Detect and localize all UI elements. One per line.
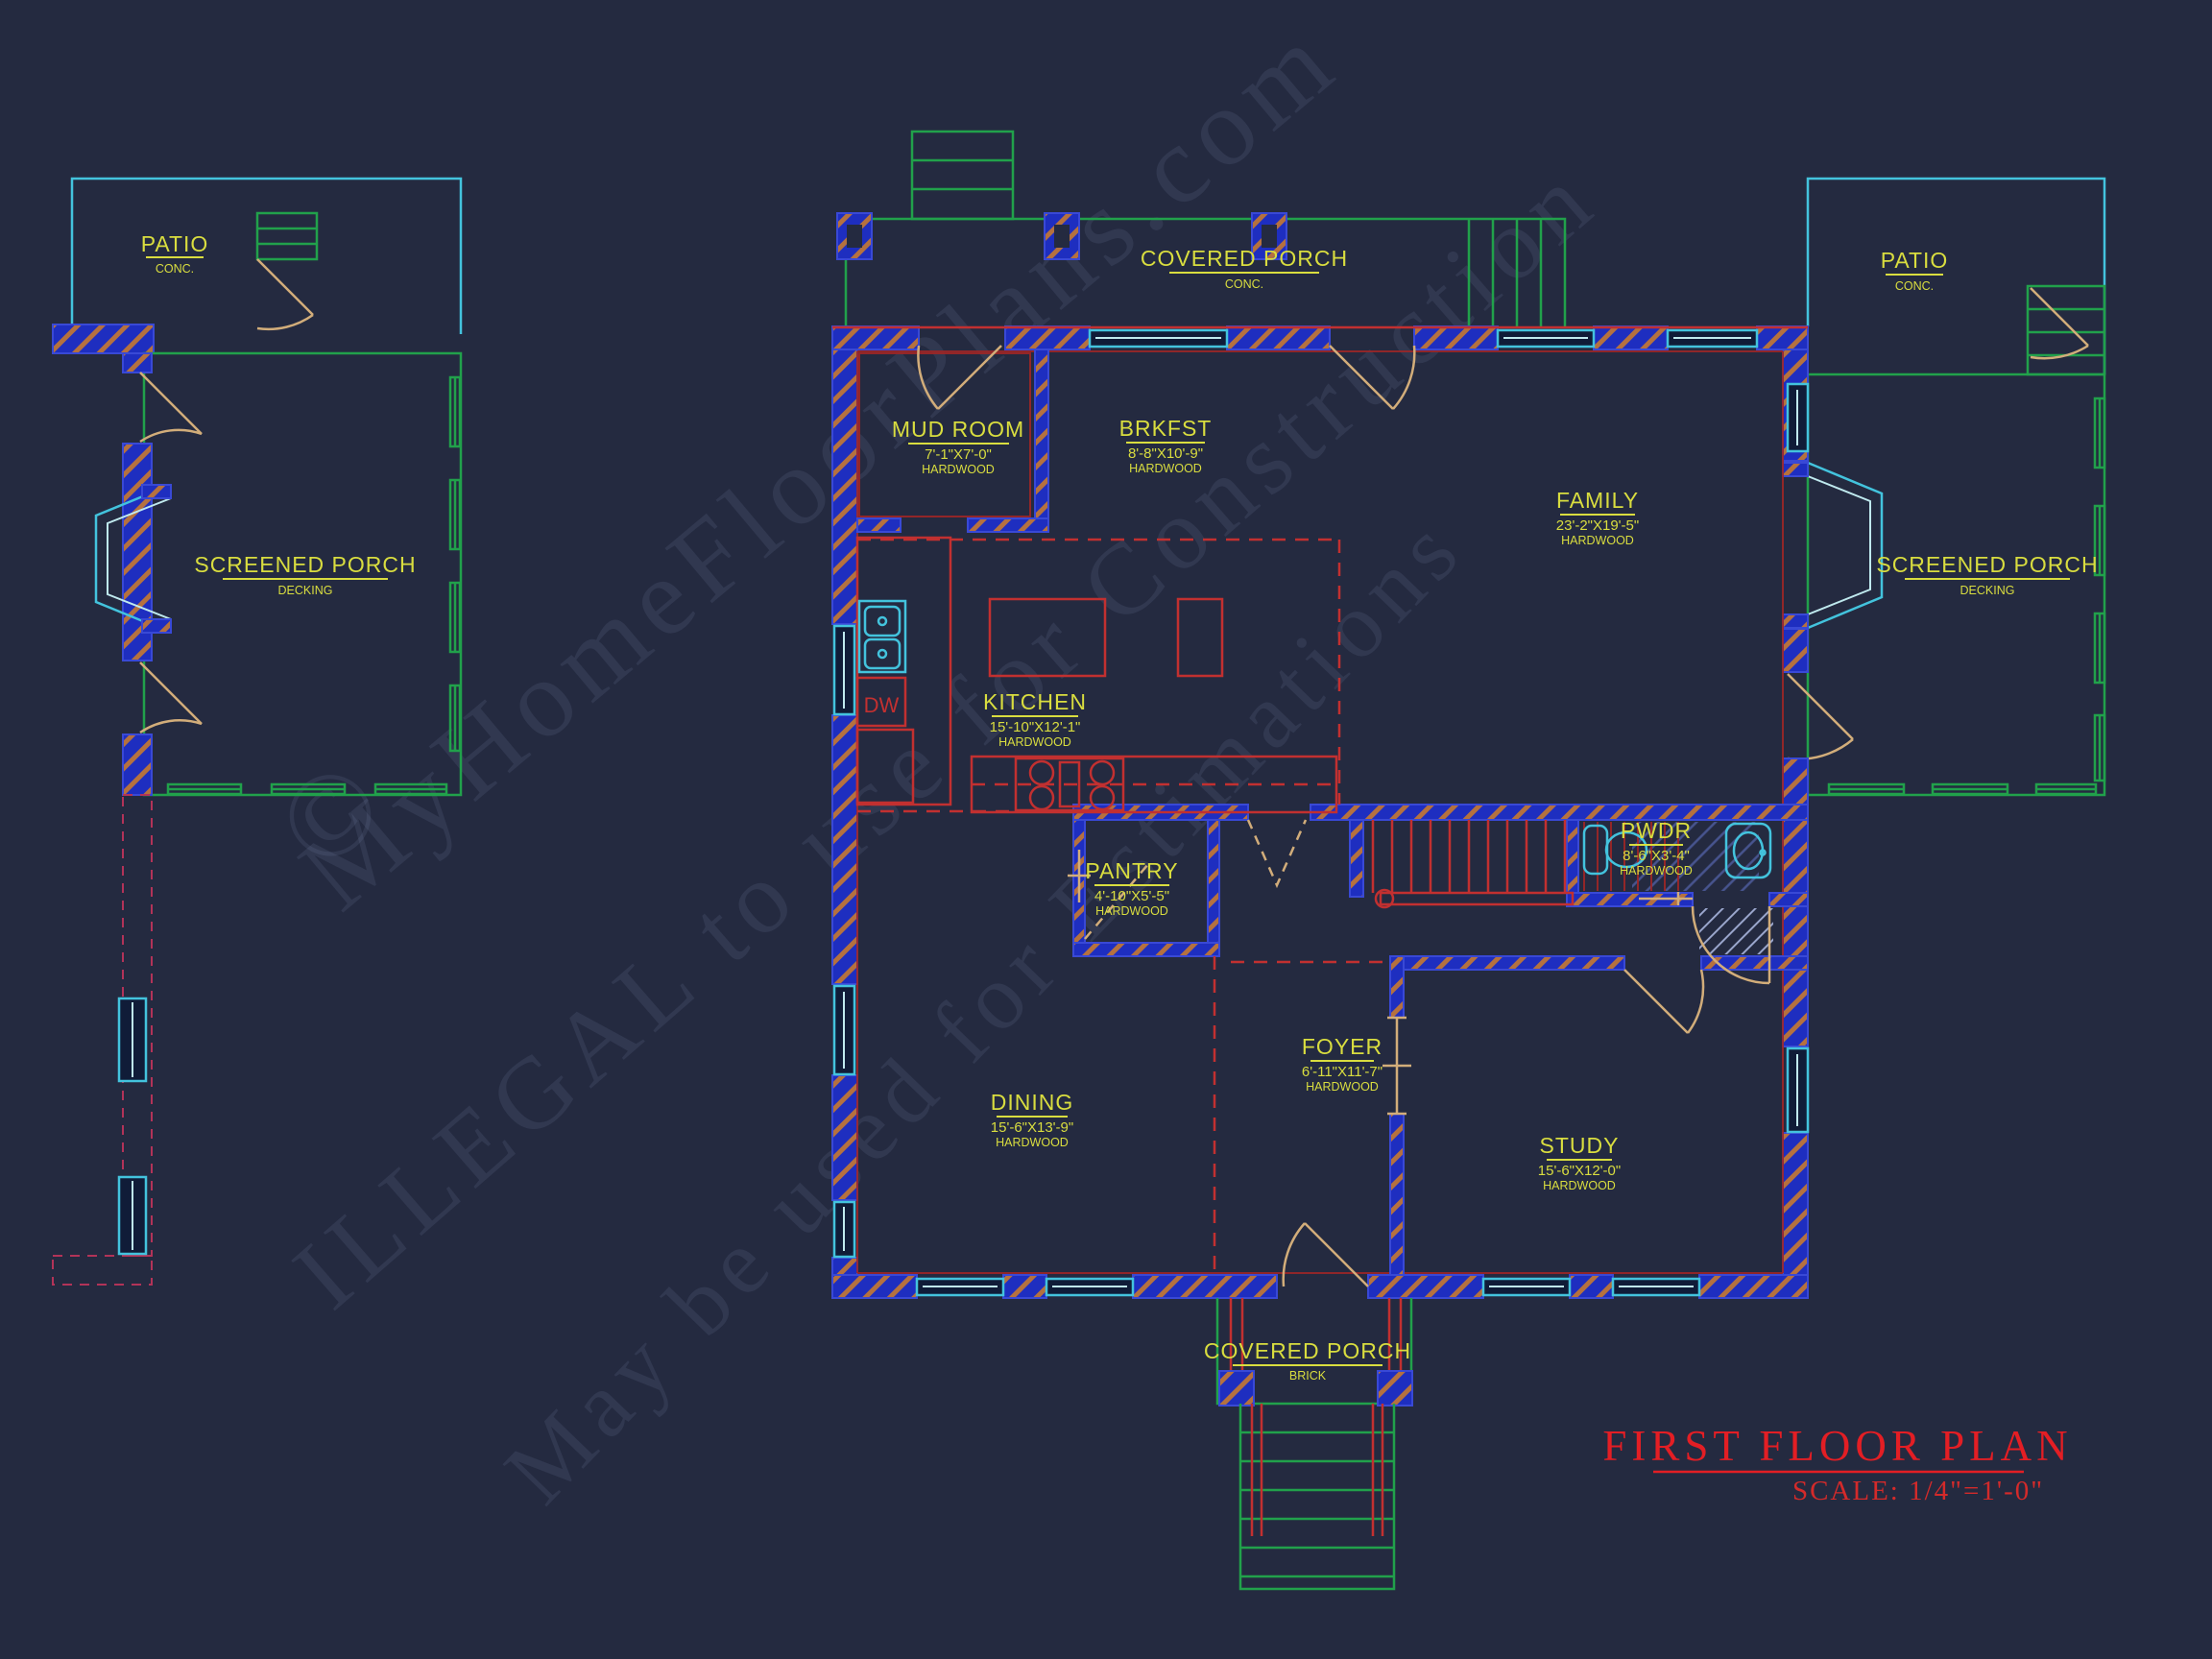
room-floor: DECKING	[1960, 584, 2015, 597]
cased-opening-marker	[1382, 1018, 1411, 1114]
room-name: PATIO	[1881, 248, 1949, 273]
room-label-patio-left: PATIO CONC.	[141, 231, 209, 276]
door-swing	[140, 662, 202, 733]
room-name: KITCHEN	[983, 689, 1087, 714]
window	[119, 1177, 146, 1254]
kitchen-fixtures: DW	[857, 538, 1339, 812]
bay-window-right	[1783, 463, 1882, 628]
wall-segment	[53, 325, 154, 353]
room-floor: HARDWOOD	[1543, 1179, 1616, 1192]
dishwasher-label: DW	[864, 693, 900, 717]
room-name: FAMILY	[1556, 488, 1639, 513]
floor-plan-drawing: DW	[0, 0, 2212, 1659]
room-floor: HARDWOOD	[1306, 1080, 1379, 1094]
window	[834, 986, 854, 1074]
room-name: PANTRY	[1085, 858, 1178, 883]
room-name: BRKFST	[1119, 416, 1213, 441]
room-floor: HARDWOOD	[996, 1136, 1069, 1149]
window	[1613, 1279, 1699, 1295]
room-label-mud-room: MUD ROOM 7'-1"X7'-0" HARDWOOD	[892, 417, 1024, 476]
window	[1788, 384, 1808, 451]
room-label-brkfst: BRKFST 8'-8"X10'-9" HARDWOOD	[1119, 416, 1213, 475]
window	[1668, 330, 1757, 347]
window	[1788, 1048, 1808, 1132]
room-floor: CONC.	[156, 262, 194, 276]
room-name: PATIO	[141, 231, 209, 256]
room-name: SCREENED PORCH	[1876, 552, 2098, 577]
porch-post	[1219, 1371, 1254, 1406]
left-wing-wall	[53, 795, 152, 1285]
front-door	[1284, 1223, 1368, 1286]
room-label-family: FAMILY 23'-2"X19'-5" HARDWOOD	[1556, 488, 1639, 547]
stair-handrail	[1381, 893, 1573, 904]
bifold-door	[1248, 820, 1306, 885]
window	[1483, 1279, 1570, 1295]
kitchen-cabinet	[857, 730, 913, 803]
room-label-screened-porch-left: SCREENED PORCH DECKING	[194, 552, 416, 597]
window	[1498, 330, 1594, 347]
kitchen-peninsula	[1178, 599, 1222, 676]
door-swing	[140, 373, 202, 442]
title-block: FIRST FLOOR PLAN SCALE: 1/4"=1'-0"	[1602, 1422, 2072, 1506]
staircase	[1373, 820, 1573, 907]
room-floor: HARDWOOD	[998, 735, 1071, 749]
window	[834, 626, 854, 714]
room-label-pwdr: PWDR 8'-6"X3'-4" HARDWOOD	[1620, 818, 1693, 878]
room-label-study: STUDY 15'-6"X12'-0" HARDWOOD	[1538, 1133, 1621, 1192]
room-label-screened-porch-right: SCREENED PORCH DECKING	[1876, 552, 2098, 597]
room-label-patio-right: PATIO CONC.	[1881, 248, 1949, 293]
room-dims: 15'-6"X12'-0"	[1538, 1163, 1621, 1179]
window	[1090, 330, 1227, 347]
room-dims: 4'-10"X5'-5"	[1094, 888, 1169, 904]
room-floor: HARDWOOD	[1095, 904, 1168, 918]
room-label-covered-porch-top: COVERED PORCH CONC.	[1141, 246, 1348, 291]
sheet-title: FIRST FLOOR PLAN	[1602, 1422, 2072, 1470]
room-floor: BRICK	[1289, 1369, 1327, 1382]
floor-plan-sheet: MyHomeFloorPlans.com ILLEGAL to use for …	[0, 0, 2212, 1659]
patio-left-outline	[53, 179, 461, 353]
window	[917, 1279, 1003, 1295]
dishwasher: DW	[857, 678, 905, 726]
room-dims: 15'-6"X13'-9"	[991, 1119, 1073, 1136]
room-dims: 7'-1"X7'-0"	[925, 446, 992, 463]
porch-steps	[1240, 1404, 1394, 1589]
room-floor: HARDWOOD	[1561, 534, 1634, 547]
room-dims: 6'-11"X11'-7"	[1302, 1064, 1382, 1080]
study-door	[1624, 970, 1703, 1033]
door-swing	[1788, 674, 1853, 759]
patio-right-outline	[1808, 179, 2104, 374]
room-dims: 8'-8"X10'-9"	[1128, 445, 1203, 462]
room-floor: CONC.	[1895, 279, 1934, 293]
room-name: FOYER	[1302, 1034, 1382, 1059]
room-name: DINING	[991, 1090, 1074, 1115]
chimney	[912, 132, 1013, 219]
door-swing	[2031, 288, 2088, 358]
room-floor: CONC.	[1225, 277, 1263, 291]
room-label-foyer: FOYER 6'-11"X11'-7" HARDWOOD	[1302, 1034, 1382, 1094]
kitchen-island	[990, 599, 1105, 676]
room-name: COVERED PORCH	[1141, 246, 1348, 271]
door-swing	[257, 259, 313, 329]
room-floor: HARDWOOD	[922, 463, 995, 476]
room-label-kitchen: KITCHEN 15'-10"X12'-1" HARDWOOD	[983, 689, 1087, 749]
room-name: COVERED PORCH	[1204, 1338, 1411, 1363]
room-name: MUD ROOM	[892, 417, 1024, 442]
patio-steps	[2028, 286, 2104, 374]
covered-porch-top-outline	[837, 132, 1565, 328]
room-floor: HARDWOOD	[1129, 462, 1202, 475]
sheet-scale: SCALE: 1/4"=1'-0"	[1792, 1476, 2044, 1506]
brkfst-door	[1330, 346, 1414, 409]
room-name: PWDR	[1621, 818, 1692, 843]
room-label-dining: DINING 15'-6"X13'-9" HARDWOOD	[991, 1090, 1074, 1149]
room-name: SCREENED PORCH	[194, 552, 416, 577]
screened-porch-right-outline	[1783, 374, 2104, 795]
patio-steps	[257, 213, 317, 259]
room-dims: 23'-2"X19'-5"	[1556, 517, 1639, 534]
room-floor: HARDWOOD	[1620, 864, 1693, 878]
room-name: STUDY	[1540, 1133, 1620, 1158]
room-dims: 8'-6"X3'-4"	[1623, 848, 1690, 864]
mud-room-door	[918, 346, 1001, 409]
porch-post	[1378, 1371, 1412, 1406]
window	[1046, 1279, 1133, 1295]
room-dims: 15'-10"X12'-1"	[990, 719, 1081, 735]
window	[119, 998, 146, 1081]
room-floor: DECKING	[278, 584, 333, 597]
window	[834, 1202, 854, 1257]
kitchen-sink	[859, 601, 905, 672]
room-label-pantry: PANTRY 4'-10"X5'-5" HARDWOOD	[1085, 858, 1178, 918]
